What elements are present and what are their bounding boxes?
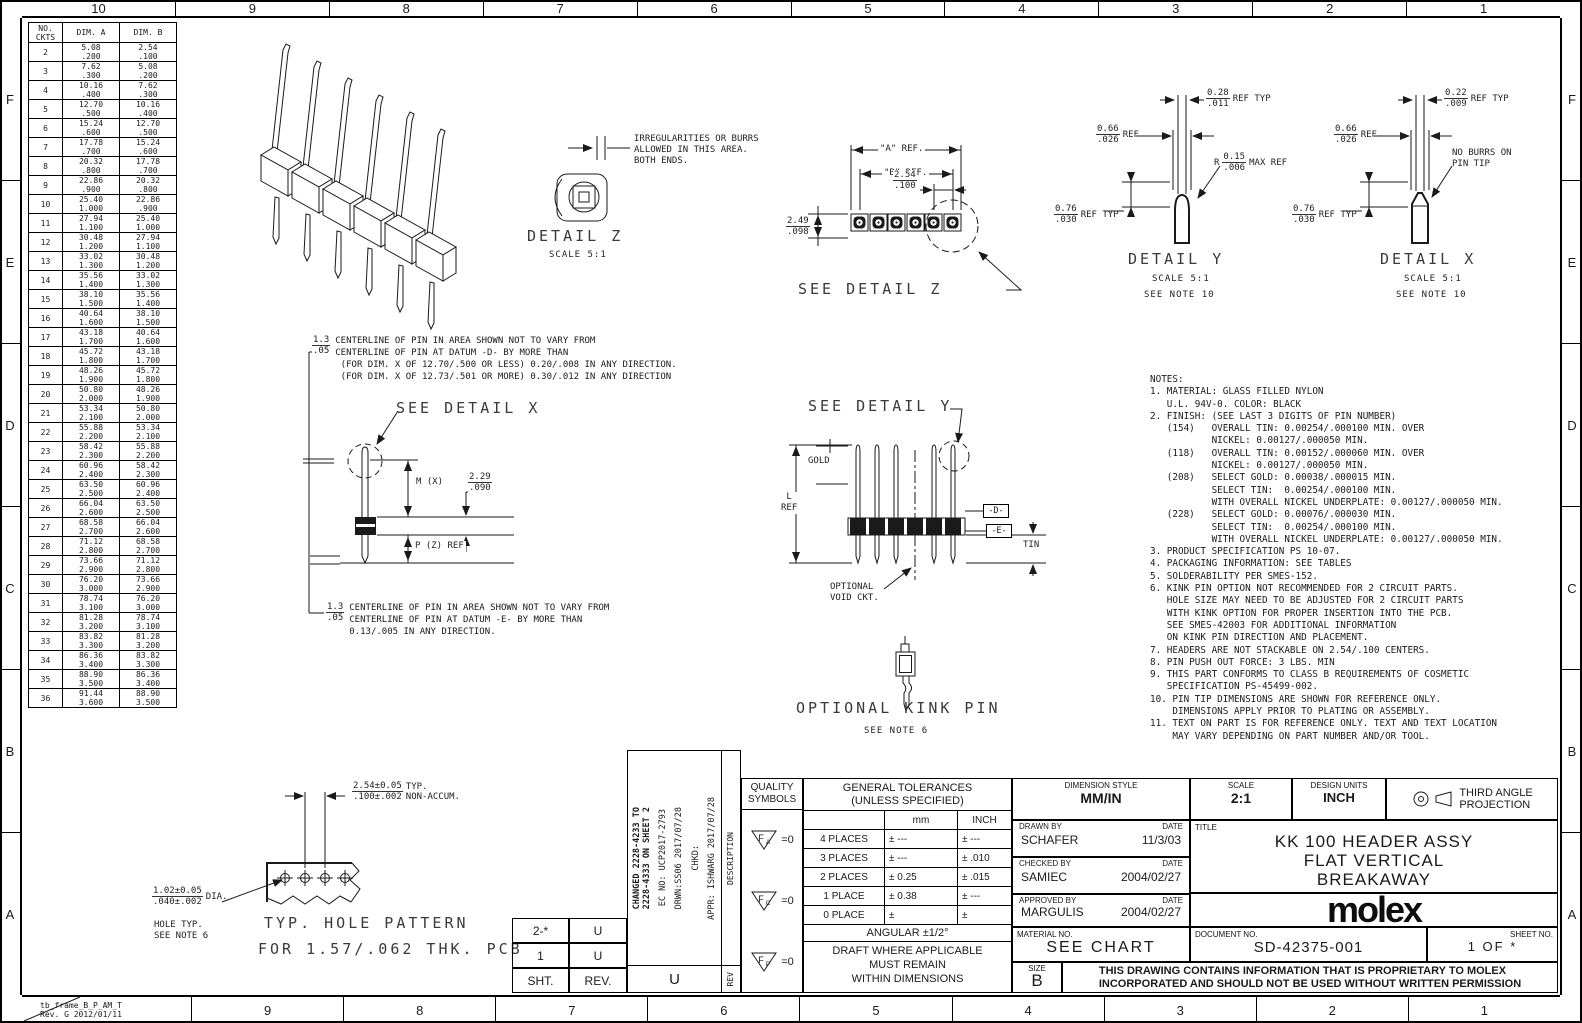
circuits-table-row: 3178.743.10076.203.000 [29,594,177,613]
general-tolerances-block: GENERAL TOLERANCES (UNLESS SPECIFIED) mm… [803,778,1012,993]
quality-triangle-icon: FC [750,889,778,913]
detail-x-tip-width-dim: 0.22.009REF TYP [1444,88,1509,109]
title-cell: TITLE KK 100 HEADER ASSY FLAT VERTICAL B… [1190,820,1558,893]
tolerances-table: mm INCH 4 PLACES± ---± ---3 PLACES± ---±… [804,810,1011,925]
circuits-table-row: 3486.363.40083.823.300 [29,651,177,670]
title-label: TITLE [1191,821,1557,832]
dimension-style-value: MM/IN [1013,790,1189,806]
approved-by-value: MARGULIS [1021,905,1084,919]
checked-date-value: 2004/02/27 [1121,870,1181,884]
datum-d-flag: -D- [983,504,1009,518]
approved-date-value: 2004/02/27 [1121,905,1181,919]
circuits-table-row: 922.86.90020.32.800 [29,176,177,195]
circuits-table-row: 37.62.3005.08.200 [29,62,177,81]
l-ref-label: L REF [779,492,799,514]
tolerance-row: 4 PLACES± ---± --- [804,830,1011,849]
document-no-value: SD-42375-001 [1191,939,1426,956]
tolerances-title: GENERAL TOLERANCES [804,782,1011,795]
svg-text:F: F [758,833,764,843]
drawn-by-cell: DRAWN BYDATE SCHAFER11/3/03 [1012,820,1190,857]
rev-row-sheet: 2-* [512,918,569,943]
size-cell: SIZE B [1012,962,1062,993]
drawn-by-label: DRAWN BY [1019,822,1062,831]
document-no-cell: DOCUMENT NO. SD-42375-001 [1190,927,1427,962]
datum-e-flag: -E- [986,524,1012,538]
detail-x-drawing [1342,95,1452,243]
pitch-dim: 2.54.100 [893,170,917,191]
checked-by-value: SAMIEC [1021,870,1067,884]
circuits-table-row: 1743.181.70040.641.600 [29,328,177,347]
see-detail-y-callout: SEE DETAIL Y [808,398,952,415]
datum-d-tolerance-note: 1.3.05 CENTERLINE OF PIN IN AREA SHOWN N… [312,335,677,383]
circuits-table-row: 1333.021.30030.481.200 [29,252,177,271]
datum-e-tolerance-note: 1.3.05 CENTERLINE OF PIN IN AREA SHOWN N… [326,602,609,638]
sht-col-label: SHT. [512,968,569,993]
sheet-no-label: SHEET NO. [1428,928,1557,939]
tolerance-row: 2 PLACES± 0.25± .015 [804,868,1011,887]
approved-by-cell: APPROVED BYDATE MARGULIS2004/02/27 [1012,894,1190,927]
col-header-dim-b: DIM. B [120,23,177,43]
optional-void-label: OPTIONAL VOID CKT. [830,582,879,604]
revision-approved: APPR: ISHWARG 2017/07/28 [707,797,717,920]
circuits-table-row: 2460.962.40058.422.300 [29,461,177,480]
circuits-table-row: 1538.101.50035.561.400 [29,290,177,309]
molex-logo: molex [1327,889,1421,931]
a-ref-dim: "A" REF. [878,144,925,154]
circuits-table-row: 2768.582.70066.042.600 [29,518,177,537]
burrs-allowed-note: IRREGULARITIES OR BURRS ALLOWED IN THIS … [634,134,759,167]
third-angle-projection-icon [1411,789,1453,809]
checked-by-label: CHECKED BY [1019,859,1071,868]
svg-text:F: F [758,894,764,904]
document-no-label: DOCUMENT NO. [1191,928,1426,939]
detail-z-scale: SCALE 5:1 [549,250,607,261]
date-label: DATE [1162,859,1183,868]
p-z-ref-label: P (Z) REF [413,541,466,552]
circuits-dimension-table: NO. CKTS DIM. A DIM. B 25.08.2002.54.100… [28,22,177,708]
hole-pattern-caption-1: TYP. HOLE PATTERN [264,915,469,932]
drawn-by-value: SCHAFER [1021,833,1078,847]
detail-y-plating-dim: 0.76.030REF TYP [1054,204,1119,225]
sheet-no-cell: SHEET NO. 1 OF * [1427,927,1558,962]
detail-x-plating-dim: 0.76.030REF TYP [1292,204,1357,225]
hole-pattern-caption-2: FOR 1.57/.062 THK. PCB [258,941,523,958]
approved-by-label: APPROVED BY [1019,896,1076,905]
quality-triangle-icon: FA [750,828,778,852]
rev-column-label: REV [726,972,736,986]
size-value: B [1013,973,1061,989]
tin-plating-label: TIN [1023,540,1039,551]
drawing-notes: NOTES: 1. MATERIAL: GLASS FILLED NYLON U… [1150,374,1503,743]
hole-typ-note: HOLE TYP. SEE NOTE 6 [154,920,208,942]
detail-y-radius-dim: R 0.15.006MAX REF [1214,152,1287,173]
logo-cell: molex [1190,893,1558,927]
circuits-table-row: 512.70.50010.16.400 [29,100,177,119]
body-height-dim: 2.29.090 [468,472,492,493]
design-units-value: INCH [1293,790,1385,805]
material-no-value: SEE CHART [1013,939,1189,957]
tolerance-row: 3 PLACES± ---± .010 [804,849,1011,868]
circuits-table-row: 3691.443.60088.903.500 [29,689,177,708]
quality-symbols-block: QUALITY SYMBOLS FA=0FC=0FP=0 [741,778,803,993]
detail-y-title: DETAIL Y [1128,251,1224,268]
kink-pin-note: SEE NOTE 6 [864,726,928,737]
scale-cell: SCALE 2:1 [1190,778,1292,820]
date-label: DATE [1162,896,1183,905]
hole-pitch-dim: 2.54±0.05.100±.002 TYP. NON-ACCUM. [352,781,460,802]
scale-label: SCALE [1191,779,1291,790]
detail-x-title: DETAIL X [1380,251,1476,268]
circuits-table-row: 3076.203.00073.662.900 [29,575,177,594]
circuits-table-row: 2050.802.00048.261.900 [29,385,177,404]
angular-tolerance: ANGULAR ±1/2° [804,925,1011,941]
circuits-table-row: 717.78.70015.24.600 [29,138,177,157]
circuits-table-body: 25.08.2002.54.10037.62.3005.08.200410.16… [29,43,177,708]
design-units-label: DESIGN UNITS [1293,779,1385,790]
quality-symbols-list: FA=0FC=0FP=0 [742,810,802,992]
revision-description-block: CHANGED 2228-4233 TO 2228-4333 ON SHEET … [627,750,741,993]
circuits-table-row: 2358.422.30055.882.200 [29,442,177,461]
circuits-table-row: 1435.561.40033.021.300 [29,271,177,290]
detail-x-scale: SCALE 5:1 [1404,274,1462,285]
isometric-header-drawing [261,44,456,329]
detail-y-drawing [1104,95,1220,243]
revision-ec-number: EC NO: UCP2017-2793 [658,809,668,906]
circuits-table-row: 2563.502.50060.962.400 [29,480,177,499]
circuits-table-row: 1640.641.60038.101.500 [29,309,177,328]
tol-col-mm: mm [885,811,958,830]
material-no-label: MATERIAL NO. [1013,928,1189,939]
revision-change-description: CHANGED 2228-4233 TO 2228-4333 ON SHEET … [632,807,652,909]
revision-checked: CHKD: [691,845,701,871]
m-x-dim-label: M (X) [414,477,445,488]
date-label: DATE [1162,822,1183,831]
rev-row-sheet: 1 [512,943,569,968]
svg-text:F: F [758,955,764,965]
sheet-no-value: 1 OF * [1428,939,1557,954]
quality-symbol: FP=0 [742,950,802,974]
detail-y-scale: SCALE 5:1 [1152,274,1210,285]
circuits-table-row: 2153.342.10050.802.000 [29,404,177,423]
engineering-drawing-sheet: 10987654321 tb_frame_B_P_AM_T Rev. G 201… [0,0,1582,1023]
detail-z-drawing [555,136,630,221]
rev-row-rev: U [569,943,627,968]
design-units-cell: DESIGN UNITS INCH [1292,778,1386,820]
quality-symbol: FC=0 [742,889,802,913]
quality-triangle-icon: FP [750,950,778,974]
scale-value: 2:1 [1191,790,1291,806]
col-header-ckts: NO. CKTS [29,23,63,43]
hole-diameter-dim: 1.02±0.05.040±.002 DIA. [152,886,227,907]
tolerance-row: 1 PLACE± 0.38± --- [804,887,1011,906]
col-header-dim-a: DIM. A [63,23,120,43]
proprietary-cell: THIS DRAWING CONTAINS INFORMATION THAT I… [1062,962,1558,993]
material-no-cell: MATERIAL NO. SEE CHART [1012,927,1190,962]
sheet-revision-table: 2-* U 1 U SHT. REV. [512,918,627,993]
header-side-view-drawing [789,409,1046,589]
svg-text:C: C [766,900,771,907]
optional-kink-pin-title: OPTIONAL KINK PIN [796,700,1001,717]
drawing-title: KK 100 HEADER ASSY FLAT VERTICAL BREAKAW… [1191,832,1557,889]
quality-symbol: FA=0 [742,828,802,852]
see-detail-x-callout: SEE DETAIL X [396,400,540,417]
gold-plating-label: GOLD [806,456,832,467]
circuits-table-row: 1127.941.10025.401.000 [29,214,177,233]
hole-pattern-drawing [222,792,360,904]
tolerances-subtitle: (UNLESS SPECIFIED) [804,795,1011,808]
rev-col-label: REV. [569,968,627,993]
current-revision-letter: U [628,965,721,992]
circuits-table-row: 1845.721.80043.181.700 [29,347,177,366]
dimension-style-cell: DIMENSION STYLE MM/IN [1012,778,1190,820]
projection-text: THIRD ANGLE PROJECTION [1459,787,1532,811]
detail-y-note: SEE NOTE 10 [1144,290,1215,301]
circuits-table-row: 1230.481.20027.941.100 [29,233,177,252]
circuits-table-row: 1948.261.90045.721.800 [29,366,177,385]
top-view-drawing [808,145,1021,290]
circuits-table-row: 25.08.2002.54.100 [29,43,177,62]
projection-cell: THIRD ANGLE PROJECTION [1386,778,1558,820]
dimension-style-label: DIMENSION STYLE [1013,779,1189,790]
circuits-table-row: 820.32.80017.78.700 [29,157,177,176]
circuits-table-row: 410.16.4007.62.300 [29,81,177,100]
revision-drawn: DRWN:SS06 2017/07/28 [674,807,684,909]
svg-text:A: A [766,839,771,846]
detail-y-tip-width-dim: 0.28.011REF TYP [1206,88,1271,109]
checked-by-cell: CHECKED BYDATE SAMIEC2004/02/27 [1012,857,1190,894]
row-height-dim: 2.49.098 [786,216,810,237]
circuits-table-row: 3281.283.20078.743.100 [29,613,177,632]
circuits-table-row: 3383.823.30081.283.200 [29,632,177,651]
drawn-date-value: 11/3/03 [1142,833,1181,847]
detail-y-shaft-width-dim: 0.66.026REF [1096,124,1139,145]
circuits-table-row: 615.24.60012.70.500 [29,119,177,138]
circuits-table-row: 3588.903.50086.363.400 [29,670,177,689]
detail-z-title: DETAIL Z [527,228,623,245]
tol-col-inch: INCH [958,811,1012,830]
circuits-table-row: 2255.882.20053.342.100 [29,423,177,442]
quality-symbols-header: QUALITY SYMBOLS [742,779,802,810]
draft-note: DRAFT WHERE APPLICABLE MUST REMAIN WITHI… [804,941,1011,992]
circuits-table-row: 2871.122.80068.582.700 [29,537,177,556]
detail-x-shaft-width-dim: 0.66.026REF [1334,124,1377,145]
description-column-label: DESCRIPTION [726,832,736,885]
no-burrs-note: NO BURRS ON PIN TIP [1452,148,1512,170]
tolerance-row: 0 PLACE±± [804,906,1011,925]
see-detail-z-callout: SEE DETAIL Z [798,281,942,298]
detail-x-note: SEE NOTE 10 [1396,290,1467,301]
circuits-table-row: 2666.042.60063.502.500 [29,499,177,518]
svg-text:P: P [766,961,770,968]
circuits-table-row: 2973.662.90071.122.800 [29,556,177,575]
proprietary-notice: THIS DRAWING CONTAINS INFORMATION THAT I… [1099,965,1521,991]
rev-row-rev: U [569,918,627,943]
circuits-table-row: 1025.401.00022.86.900 [29,195,177,214]
